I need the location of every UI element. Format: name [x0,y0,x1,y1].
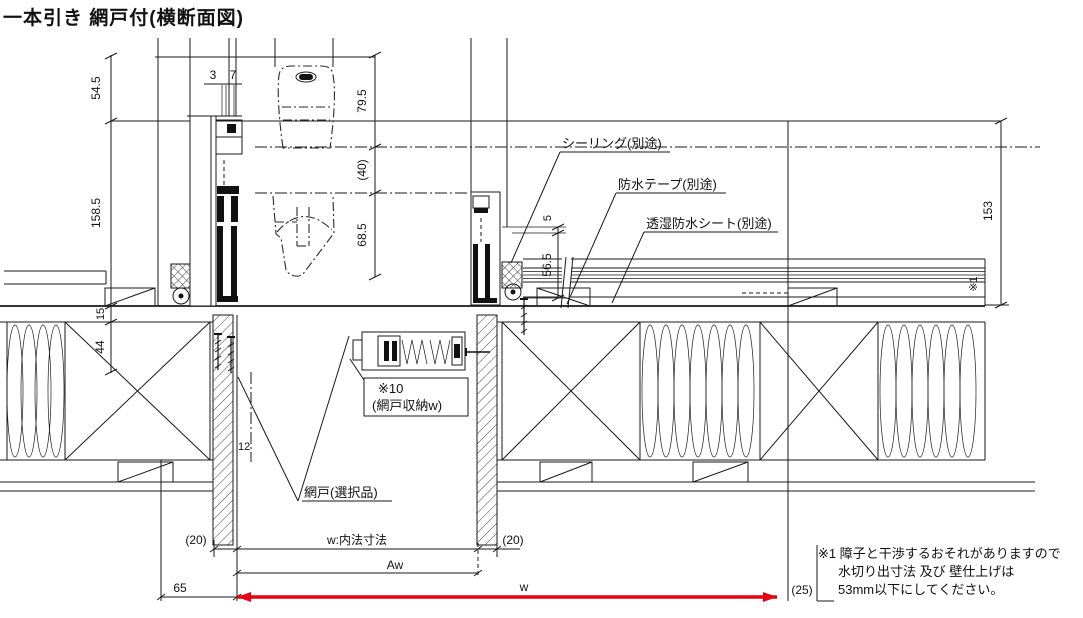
stud-box-left [65,322,210,460]
drawing-page: 54.5 158.5 15 44 3 7 79.5 (40) 68.5 5 56… [0,0,1083,618]
label-sheet: 透湿防水シート(別途) [646,216,772,231]
exterior-trim-left [213,315,233,545]
dim-79-5: 79.5 [355,89,369,113]
exterior-trim-right [477,315,497,545]
dim-20-right: (20) [502,533,523,547]
sill-screw [520,299,528,335]
dim-12: 12 [238,441,250,453]
screen-mechanism [251,332,490,462]
cross-section-drawing: 54.5 158.5 15 44 3 7 79.5 (40) 68.5 5 56… [0,0,1083,618]
left-jamb [171,116,242,306]
leader-sealing: シーリング(別途) [511,136,670,263]
exterior-face [0,462,1035,491]
note-line-3: 53mm以下にしてください。 [838,582,1003,597]
insulation-left [7,325,64,457]
right-jamb [471,192,528,335]
handle-lower-phantom [273,196,334,276]
dim-68-5: 68.5 [355,223,369,247]
insulation-right-2 [880,325,976,457]
dim-56-5: 56.5 [540,253,554,277]
dim-aw: Aw [387,558,404,572]
dim-7: 7 [230,68,237,82]
dim-15: 15 [95,308,107,320]
footnote: ※1 障子と干渉するおそれがありますので 水切り出寸法 及び 壁仕上げは 53m… [818,546,1061,597]
dim-44: 44 [93,340,107,354]
dim-54-5: 54.5 [89,76,103,100]
dim-153: 153 [981,201,995,221]
dim-left-column: 54.5 158.5 15 44 [89,53,117,375]
label-sealing: シーリング(別途) [562,136,662,151]
label-screen: 網戸(選択品) [304,485,378,500]
dim-center-column: 79.5 (40) 68.5 [355,52,381,280]
dim-w: w [519,580,529,594]
dim-65: 65 [173,581,187,595]
interior-wall-left [4,271,155,306]
handle-upper-phantom [278,66,334,148]
insulation-right-1 [642,325,754,457]
note-line-2: 水切り出寸法 及び 壁仕上げは [838,564,1014,579]
dim-3: 3 [210,68,217,82]
label-tape: 防水テープ(別途) [618,177,717,192]
label-screen-ref: ※10 [378,381,403,396]
ref-1-mark: ※1 [968,276,980,291]
dim-20-left: (20) [185,533,206,547]
dim-40: (40) [355,159,369,180]
dim-w-inner: w:内法寸法 [326,533,387,547]
sealing-backer-left [171,264,190,288]
dim-5: 5 [542,215,554,221]
page-title: 一本引き 網戸付(横断面図) [3,6,244,29]
label-screen-stock: (網戸収納w) [372,398,442,413]
stud-box-right-2 [760,322,878,460]
dim-25: (25) [791,583,812,597]
stud-box-right-1 [502,322,640,460]
dim-158-5: 158.5 [89,198,103,228]
note-line-1: ※1 障子と干渉するおそれがありますので [818,546,1061,561]
interior-wall-right [523,256,985,309]
leader-tape: 防水テープ(別途) [567,177,726,304]
projection-lines [111,38,1040,601]
